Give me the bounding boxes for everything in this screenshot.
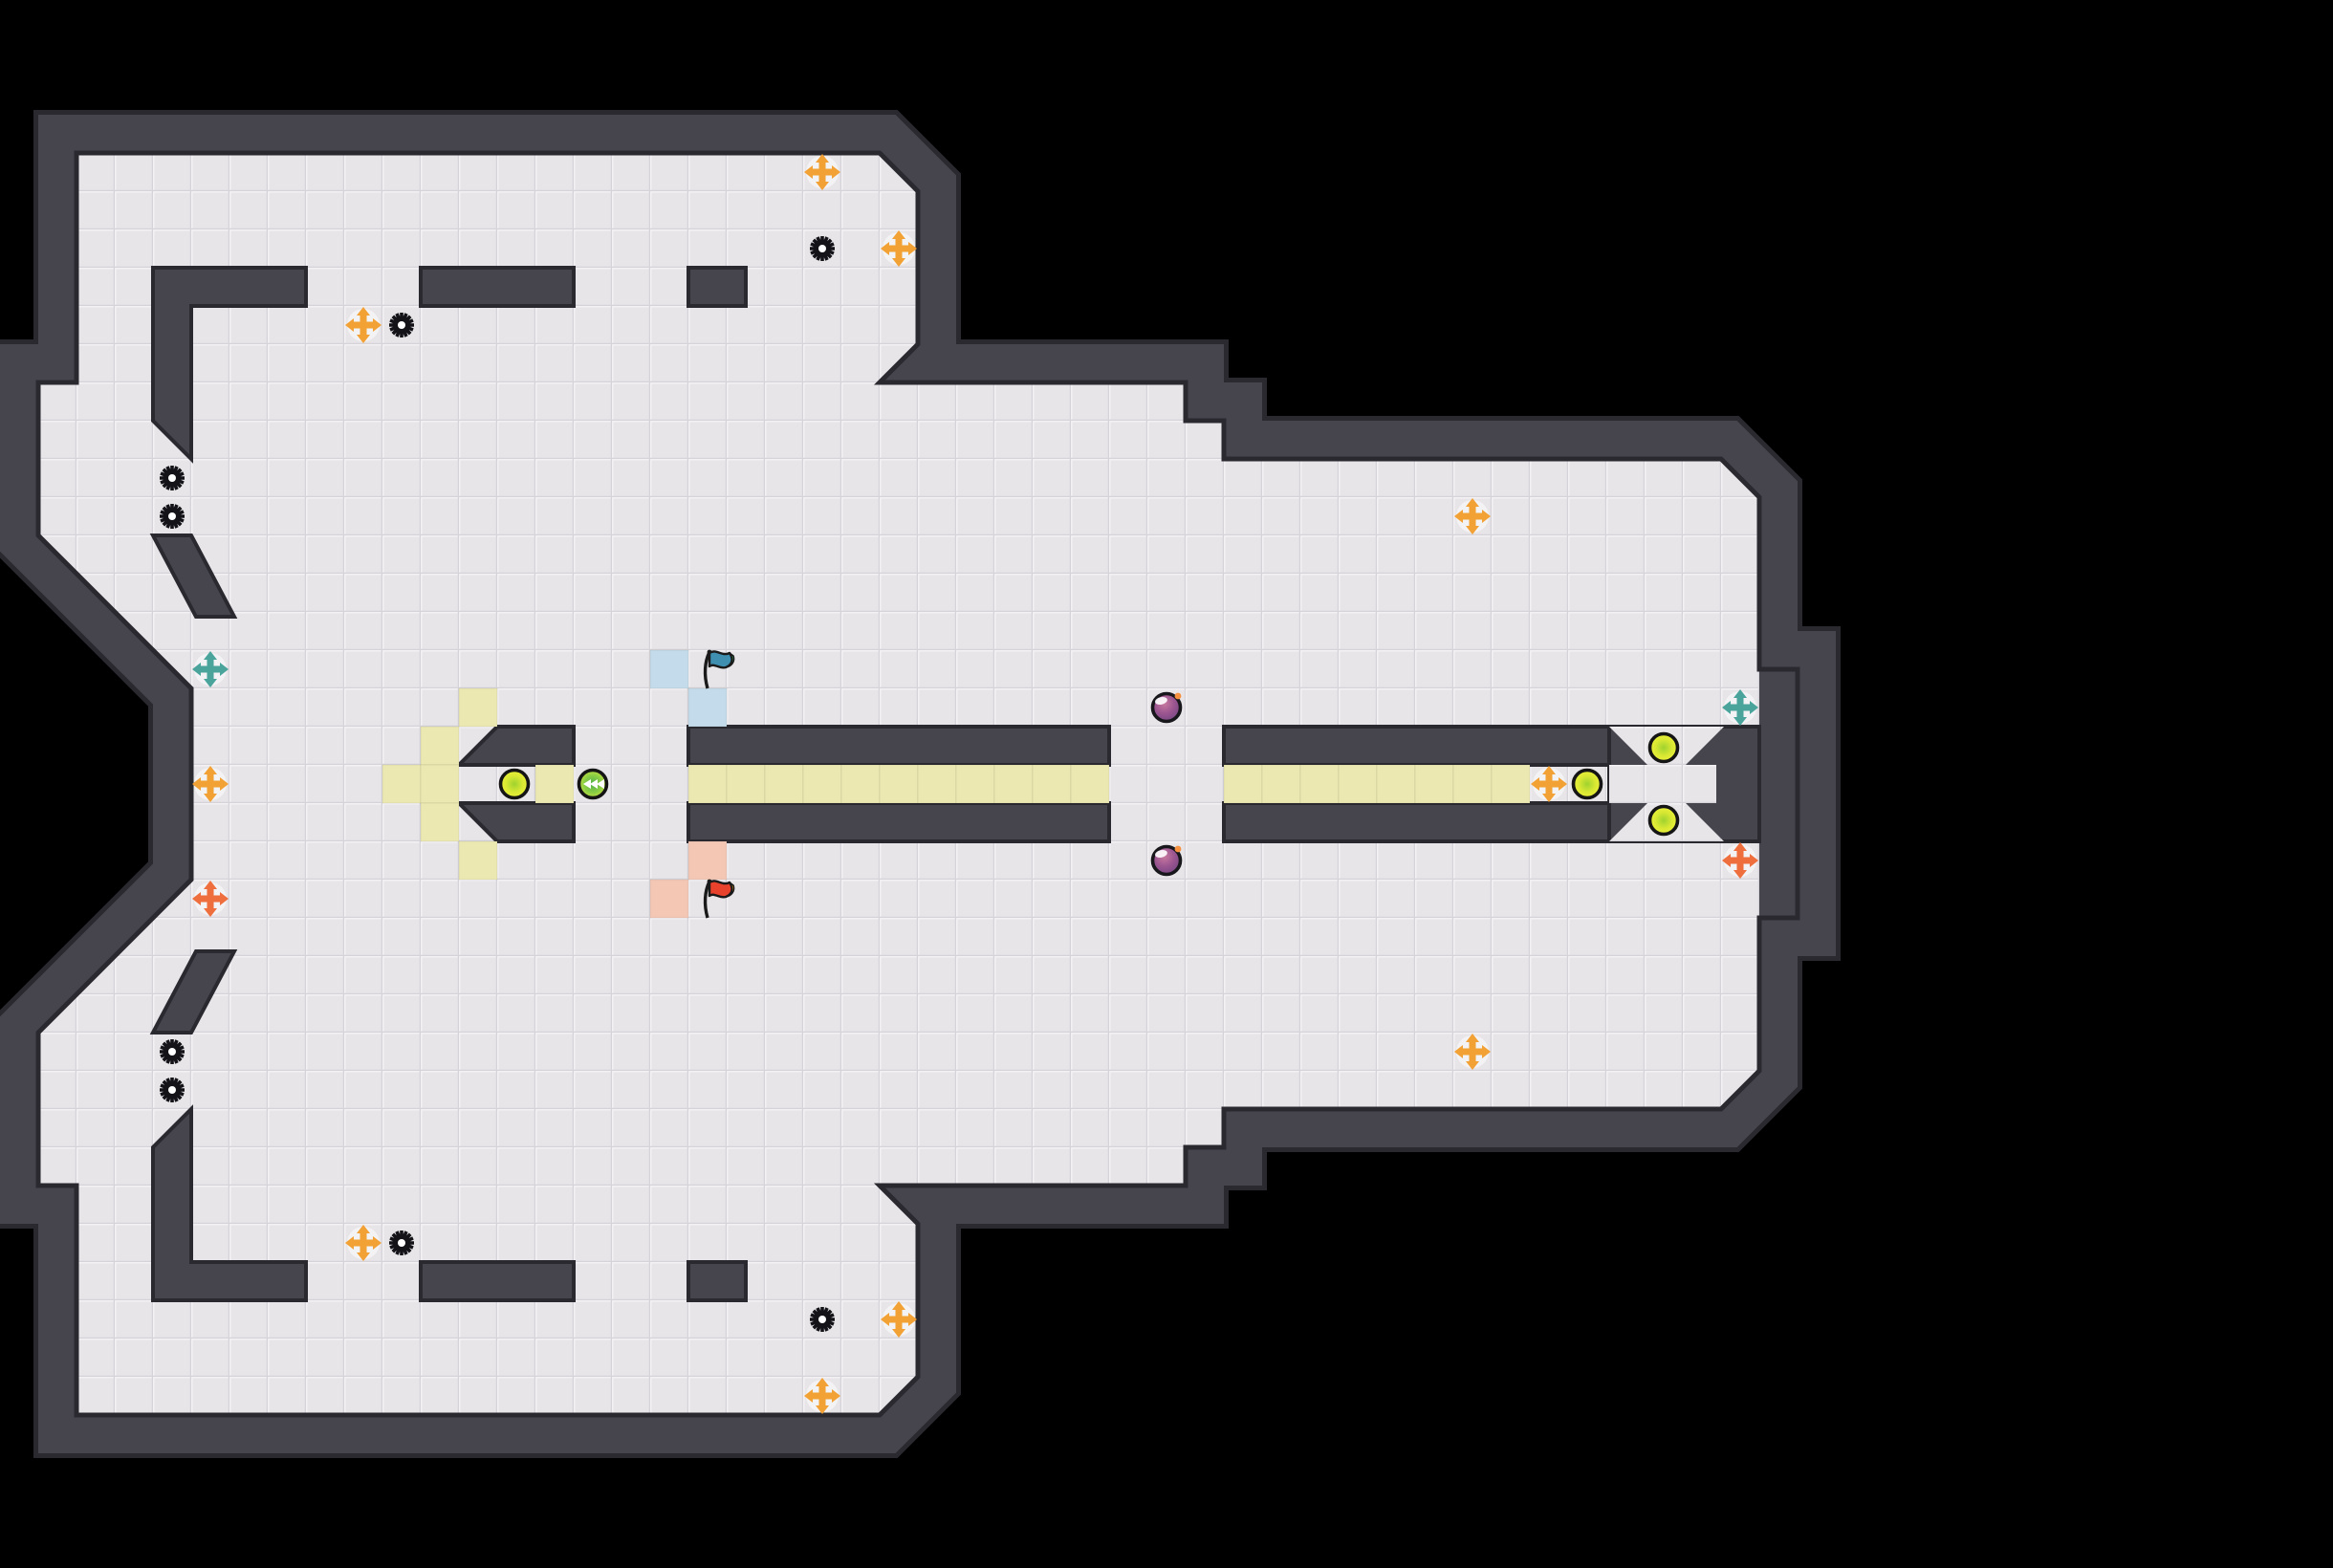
mine-icon[interactable] xyxy=(810,1307,835,1332)
mine-icon[interactable] xyxy=(160,1078,185,1102)
tile-yellow xyxy=(421,803,459,841)
tile-yellow xyxy=(459,688,497,727)
tile-yellow xyxy=(841,765,880,803)
floor-bottom-wing xyxy=(1224,841,1759,1109)
tile-blue xyxy=(688,688,727,727)
tile-yellow xyxy=(1033,765,1071,803)
tile-yellow xyxy=(956,765,994,803)
tile-yellow xyxy=(535,765,574,803)
tile-blue xyxy=(650,650,688,688)
tile-salmon xyxy=(650,880,688,918)
level-canvas[interactable] xyxy=(0,0,2333,1568)
tile-yellow xyxy=(765,765,803,803)
floor-top-wing xyxy=(1224,459,1759,727)
mine-icon[interactable] xyxy=(810,236,835,261)
boost-chevron-icon[interactable] xyxy=(579,771,607,798)
boost-icon[interactable] xyxy=(501,771,529,798)
mine-icon[interactable] xyxy=(389,1230,414,1255)
tile-yellow xyxy=(918,765,956,803)
boost-icon[interactable] xyxy=(1650,807,1678,835)
tile-yellow xyxy=(1339,765,1377,803)
tile-yellow xyxy=(1453,765,1492,803)
tile-yellow xyxy=(382,765,421,803)
corridor-wall xyxy=(1224,727,1609,765)
tile-yellow xyxy=(994,765,1033,803)
tile-yellow xyxy=(1415,765,1453,803)
boost-icon[interactable] xyxy=(1574,771,1602,798)
tile-yellow xyxy=(1071,765,1109,803)
corridor-wall xyxy=(1224,803,1609,841)
tile-yellow xyxy=(688,765,727,803)
mine-icon[interactable] xyxy=(160,466,185,490)
tile-yellow xyxy=(1492,765,1530,803)
mine-icon[interactable] xyxy=(160,504,185,529)
tile-yellow xyxy=(803,765,841,803)
mine-icon[interactable] xyxy=(160,1039,185,1064)
wall-dash xyxy=(421,1262,574,1300)
tile-yellow xyxy=(459,841,497,880)
wall-dash xyxy=(421,268,574,306)
wall-dash xyxy=(688,1262,746,1300)
tile-yellow xyxy=(880,765,918,803)
wall-dash xyxy=(688,268,746,306)
tile-yellow xyxy=(1300,765,1339,803)
bomb-icon[interactable] xyxy=(1153,846,1182,875)
boost-icon[interactable] xyxy=(1650,734,1678,762)
tile-yellow xyxy=(421,727,459,765)
neck xyxy=(1609,765,1716,803)
tile-salmon xyxy=(688,841,727,880)
tile-yellow xyxy=(1262,765,1300,803)
bomb-icon[interactable] xyxy=(1153,693,1182,722)
corridor-wall xyxy=(688,803,1109,841)
tile-yellow xyxy=(421,765,459,803)
tile-yellow xyxy=(727,765,765,803)
game-stage xyxy=(0,0,2333,1568)
corridor-wall xyxy=(688,727,1109,765)
mine-icon[interactable] xyxy=(389,313,414,338)
tile-yellow xyxy=(1224,765,1262,803)
tile-yellow xyxy=(1377,765,1415,803)
